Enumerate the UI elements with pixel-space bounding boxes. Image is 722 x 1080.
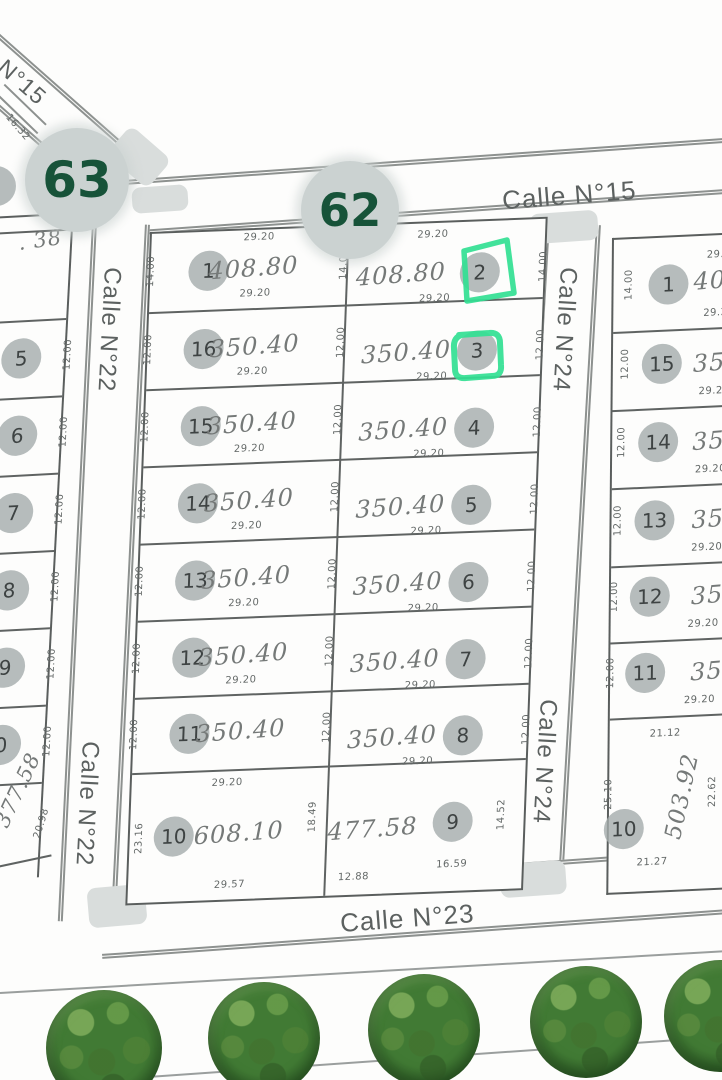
curb-fillet (131, 184, 189, 214)
lot-area: 608.10 (194, 816, 284, 851)
lot-number-badge: 10 (153, 816, 194, 858)
dimension-label: 12.00 (53, 493, 66, 525)
dimension-label: 12.00 (142, 334, 154, 366)
dimension-label: 29.20 (695, 463, 722, 475)
lot-area: 350.40 (692, 343, 722, 378)
dimension-label: 29.20 (691, 541, 722, 553)
dimension-label: 22.62 (707, 776, 718, 808)
lot-number-badge: 1 (648, 264, 688, 306)
dimension-label: 16.59 (436, 858, 468, 870)
dimension-label: 29.20 (417, 229, 449, 241)
lot-area: 350.40 (201, 560, 291, 595)
lot-line (0, 550, 54, 561)
dimension-label: 12.00 (139, 411, 151, 443)
tree-icon (46, 990, 162, 1080)
lot-area: 350.40 (355, 489, 445, 524)
dimension-label: 12.00 (620, 348, 631, 380)
block-right-strip: 29.20 1 14.00 408.80 29.20 15 12.00 350.… (606, 229, 722, 895)
dimension-label: 12.00 (529, 483, 541, 515)
dimension-label: 29.20 (225, 674, 257, 686)
lot-area: 350.40 (195, 714, 285, 749)
block-badge-63: 63 (25, 128, 129, 232)
dimension-label: 12.00 (327, 558, 339, 590)
dimension-label: 12.00 (616, 426, 627, 458)
dimension-label: 12.00 (41, 725, 54, 757)
dimension-label: 21.12 (650, 727, 681, 739)
tree-icon (368, 974, 480, 1080)
dimension-label: 29.57 (214, 879, 246, 891)
dimension-label: 29.20 (234, 443, 266, 455)
dimension-label: 14.00 (624, 269, 635, 301)
dimension-label: 12.00 (321, 711, 333, 743)
dimension-label: 21.27 (636, 856, 667, 868)
lot-area: 408.80 (693, 261, 722, 296)
lot-area: 350.40 (353, 566, 443, 601)
lot-area: 350.40 (347, 720, 437, 755)
lot-number-badge: 13 (634, 499, 674, 541)
highlight-lot-3[interactable] (445, 323, 513, 387)
dimension-label: 18.49 (307, 801, 319, 833)
dimension-label: 12.00 (49, 571, 62, 603)
lot-area: 408.80 (208, 251, 298, 286)
lot-line (0, 627, 50, 638)
tree-icon (530, 966, 642, 1078)
dimension-label: 29.20 (407, 602, 439, 614)
dimension-label: 29.20 (410, 525, 442, 537)
lot-area: 350.40 (692, 421, 722, 456)
lot-area: 350.40 (204, 483, 294, 518)
lot-number-badge: 12 (630, 576, 670, 618)
lot-line (0, 473, 58, 484)
dimension-label: 12.00 (58, 416, 71, 448)
lot-number-badge: 10 (604, 808, 644, 850)
tree-icon (664, 960, 722, 1072)
lot-area: 350.40 (350, 644, 440, 679)
lot-area: 350.40 (210, 329, 300, 364)
dimension-label: 29.20 (239, 287, 271, 299)
lot-area: 350.40 (198, 637, 288, 672)
dimension-label: 12.00 (532, 406, 544, 438)
dimension-label: 29.20 (243, 231, 275, 243)
dimension-label: 12.00 (131, 643, 143, 675)
dimension-label: 12.00 (609, 581, 620, 613)
lot-number-badge: 8 (0, 569, 30, 611)
lot-number-badge: 4 (453, 407, 494, 449)
block-62-number: 62 (319, 184, 382, 237)
dimension-label: 12.00 (332, 404, 344, 436)
lot-line (610, 633, 722, 644)
lot-area: 350.40 (207, 406, 297, 441)
lot-number-badge: 5 (0, 337, 42, 379)
dimension-label: 29.20 (698, 385, 722, 397)
highlight-lot-2[interactable] (451, 233, 523, 311)
dimension-label: 12.00 (612, 505, 623, 537)
dimension-label: 29.20 (687, 618, 718, 630)
lot-number-badge: 14 (638, 421, 678, 463)
lot-number-badge: 15 (642, 343, 682, 385)
lot-number-badge: 5 (451, 484, 492, 526)
dimension-label: 12.00 (526, 560, 538, 592)
dimension-label: 12.00 (137, 488, 149, 520)
lot-line (0, 395, 62, 406)
lot-line (610, 710, 722, 721)
dimension-label: 12.00 (335, 326, 347, 358)
dimension-label: 29.20 (236, 366, 268, 378)
dimension-label: 12.00 (605, 657, 616, 689)
dimension-label: 12.00 (523, 637, 535, 669)
lot-number-badge: 7 (445, 638, 486, 680)
dimension-label: 12.00 (134, 565, 146, 597)
lot-area: 350.40 (691, 499, 722, 534)
lot-area: 350.40 (690, 575, 722, 610)
dimension-label: 12.00 (45, 648, 58, 680)
dimension-label: 25.10 (603, 778, 614, 810)
dimension-label: 23.16 (133, 823, 145, 855)
lot-line (612, 479, 722, 490)
dimension-label: 29.20 (231, 520, 263, 532)
lot-line (613, 323, 722, 334)
dimension-label: 29.20 (707, 248, 722, 260)
dimension-label: 14.00 (145, 256, 157, 288)
dimension-label: 14.00 (537, 251, 549, 283)
lot-area: 350.40 (690, 651, 722, 686)
tree-icon (208, 982, 320, 1080)
dimension-label: 29.20 (413, 448, 445, 460)
block-63-number: 63 (42, 151, 112, 209)
dimension-label: 29.20 (211, 777, 243, 789)
dimension-label: 29.20 (402, 756, 434, 768)
lot-area: 350.40 (361, 335, 451, 370)
lot-area: 503.92 (660, 751, 704, 841)
dimension-label: 29.20 (419, 293, 451, 305)
lot-number-badge (0, 166, 16, 206)
block-badge-62: 62 (301, 161, 399, 259)
block-62: 29.20 1 408.80 29.20 14.00 14.00 29.20 4… (125, 217, 547, 906)
dimension-label: 14.52 (495, 799, 507, 831)
lot-area: 350.40 (358, 412, 448, 447)
lot-number-badge: 6 (448, 561, 489, 603)
lot-number-badge: 7 (0, 492, 34, 534)
lot-number-badge: 6 (0, 415, 38, 457)
dimension-label: 29.20 (684, 694, 715, 706)
dimension-label: 12.00 (535, 329, 547, 361)
lot-number-badge: 9 (0, 647, 26, 689)
lot-line (611, 557, 722, 568)
lot-number-badge: 8 (442, 715, 483, 757)
lot-line (0, 318, 66, 329)
dimension-label: 12.00 (128, 719, 140, 751)
subdivision-map: Calle N°15 N°15 Calle N°22 Calle N°22 Ca… (0, 0, 722, 1080)
lot-area: 477.58 (328, 812, 418, 847)
lot-area: 408.80 (356, 257, 446, 292)
dimension-label: 12.00 (62, 339, 75, 371)
dimension-label: 29.20 (405, 679, 437, 691)
lot-number-badge: 11 (625, 652, 665, 694)
dimension-label: 29.20 (228, 597, 260, 609)
dimension-label: 12.00 (329, 481, 341, 513)
lot-line (0, 705, 46, 716)
dimension-label: 12.88 (338, 871, 370, 883)
lot-number-badge: 9 (432, 801, 473, 843)
lot-line (612, 401, 722, 412)
dimension-label: 12.00 (324, 635, 336, 667)
dimension-label: 29.20 (416, 371, 448, 383)
dimension-label: 29.20 (703, 307, 722, 319)
